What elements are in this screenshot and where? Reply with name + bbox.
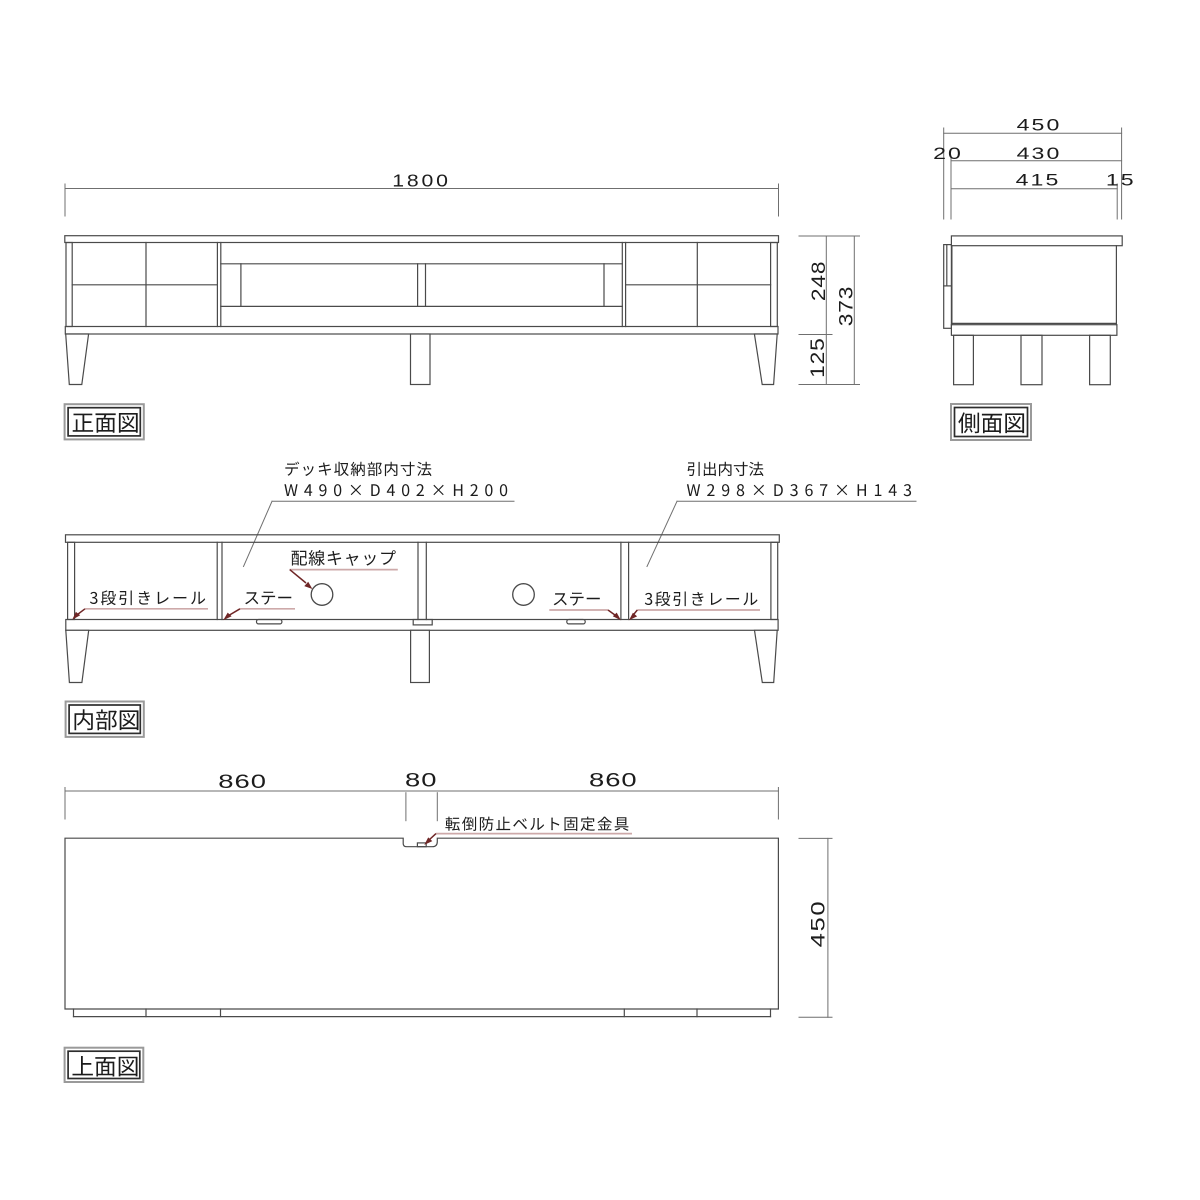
svg-text:20: 20: [933, 145, 963, 163]
svg-text:860: 860: [218, 771, 267, 792]
svg-text:80: 80: [405, 770, 437, 791]
svg-text:450: 450: [808, 900, 829, 948]
svg-text:450: 450: [1017, 116, 1062, 134]
svg-text:415: 415: [1016, 171, 1061, 189]
svg-text:860: 860: [589, 770, 638, 791]
svg-text:430: 430: [1017, 145, 1062, 163]
svg-text:125: 125: [808, 337, 829, 378]
svg-text:1800: 1800: [392, 171, 451, 191]
svg-text:373: 373: [836, 286, 857, 327]
svg-text:248: 248: [809, 261, 830, 302]
svg-text:15: 15: [1106, 171, 1136, 189]
